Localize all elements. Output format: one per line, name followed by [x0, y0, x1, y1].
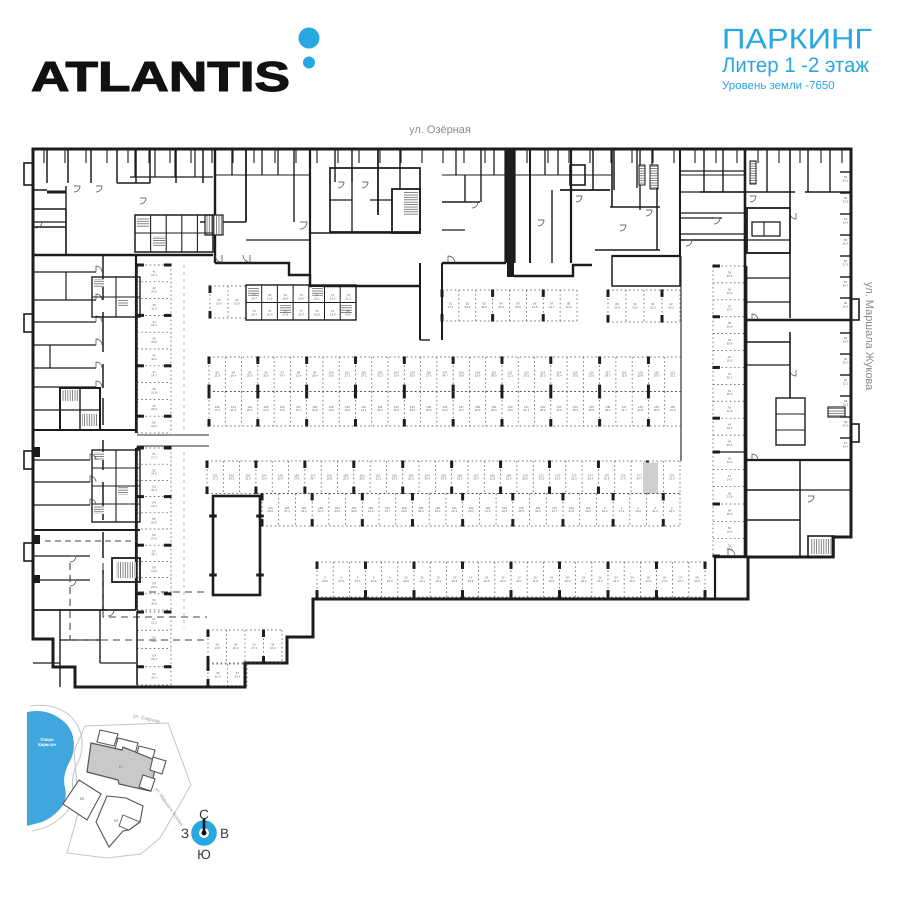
svg-text:10627.6: 10627.6	[426, 370, 432, 377]
svg-text:15816.8: 15816.8	[327, 473, 333, 480]
svg-text:17025.0: 17025.0	[522, 473, 528, 480]
svg-text:14311.3: 14311.3	[556, 405, 562, 412]
svg-text:С: С	[199, 807, 209, 822]
svg-text:16030.0: 16030.0	[359, 473, 365, 480]
svg-text:19418.4: 19418.4	[502, 506, 508, 513]
svg-text:17428.4: 17428.4	[587, 473, 593, 480]
svg-text:17510.5: 17510.5	[604, 473, 610, 480]
svg-text:З: З	[181, 826, 189, 841]
svg-text:13612.6: 13612.6	[442, 405, 448, 412]
svg-text:15331.3: 15331.3	[245, 473, 251, 480]
svg-text:11433.4: 11433.4	[556, 370, 562, 377]
svg-text:15734.7: 15734.7	[310, 473, 316, 480]
svg-text:17321.3: 17321.3	[571, 473, 577, 480]
svg-text:65: 65	[114, 818, 119, 823]
svg-text:Ю: Ю	[197, 847, 211, 862]
svg-text:11030.0: 11030.0	[491, 370, 497, 377]
svg-text:12025.0: 12025.0	[654, 370, 660, 377]
svg-text:ОзероКарасун: ОзероКарасун	[38, 737, 56, 747]
svg-text:В: В	[220, 826, 229, 841]
svg-text:14122.1: 14122.1	[524, 405, 530, 412]
svg-text:18020.0: 18020.0	[268, 506, 274, 513]
svg-text:14015.0: 14015.0	[507, 405, 513, 412]
svg-text:15627.6: 15627.6	[294, 473, 300, 480]
svg-text:18612.6: 18612.6	[368, 506, 374, 513]
svg-text:10734.7: 10734.7	[442, 370, 448, 377]
svg-text:14418.4: 14418.4	[572, 405, 578, 412]
svg-text:17214.2: 17214.2	[555, 473, 561, 480]
svg-text:18127.1: 18127.1	[284, 506, 290, 513]
svg-text:10224.2: 10224.2	[361, 370, 367, 377]
svg-text:19928.9: 19928.9	[585, 506, 591, 513]
svg-text:11918.9: 11918.9	[637, 370, 643, 377]
svg-text:10413.4: 10413.4	[393, 370, 399, 377]
svg-text:13719.7: 13719.7	[458, 405, 464, 412]
svg-text:11811.8: 11811.8	[621, 370, 627, 377]
svg-text:16326.3: 16326.3	[408, 473, 414, 480]
svg-text:18234.2: 18234.2	[301, 506, 307, 513]
svg-text:14821.8: 14821.8	[637, 405, 643, 412]
svg-text:13933.9: 13933.9	[491, 405, 497, 412]
svg-text:17617.6: 17617.6	[620, 473, 626, 480]
svg-text:11326.3: 11326.3	[540, 370, 546, 377]
svg-text:11729.7: 11729.7	[605, 370, 611, 377]
svg-text:15117.1: 15117.1	[212, 473, 218, 480]
svg-text:14229.2: 14229.2	[540, 405, 546, 412]
svg-text:Литер 1 -2 этаж: Литер 1 -2 этаж	[722, 54, 869, 77]
svg-text:13234.2: 13234.2	[377, 405, 383, 412]
svg-text:11515.5: 11515.5	[572, 370, 578, 377]
svg-text:17724.7: 17724.7	[636, 473, 642, 480]
svg-text:11622.6: 11622.6	[589, 370, 595, 377]
svg-text:10331.3: 10331.3	[377, 370, 383, 377]
svg-text:12428.4: 12428.4	[247, 405, 253, 412]
svg-text:15413.4: 15413.4	[261, 473, 267, 480]
svg-text:13530.5: 13530.5	[426, 405, 432, 412]
svg-text:16811.8: 16811.8	[490, 473, 496, 480]
svg-text:66: 66	[80, 796, 85, 801]
svg-text:12724.7: 12724.7	[296, 405, 302, 412]
svg-text:12132.1: 12132.1	[670, 370, 676, 377]
svg-text:16112.1: 16112.1	[375, 473, 381, 480]
svg-text:16729.7: 16729.7	[473, 473, 479, 480]
svg-text:18719.7: 18719.7	[385, 506, 391, 513]
svg-text:19714.7: 19714.7	[552, 506, 558, 513]
svg-text:10117.1: 10117.1	[345, 370, 351, 377]
svg-text:19821.8: 19821.8	[568, 506, 574, 513]
svg-text:ATLANTIS: ATLANTIS	[31, 53, 290, 100]
svg-text:18423.4: 18423.4	[334, 506, 340, 513]
svg-text:13826.8: 13826.8	[475, 405, 481, 412]
svg-text:18316.3: 18316.3	[318, 506, 324, 513]
svg-text:19525.5: 19525.5	[518, 506, 524, 513]
svg-text:16433.4: 16433.4	[424, 473, 430, 480]
svg-text:13127.1: 13127.1	[361, 405, 367, 412]
svg-text:10010.0: 10010.0	[328, 370, 334, 377]
svg-text:15224.2: 15224.2	[229, 473, 235, 480]
svg-text:Уровень земли -7650: Уровень земли -7650	[722, 80, 835, 92]
svg-text:12617.6: 12617.6	[279, 405, 285, 412]
svg-text:15010.0: 15010.0	[670, 405, 676, 412]
svg-text:19632.6: 19632.6	[535, 506, 541, 513]
svg-text:67: 67	[119, 764, 124, 769]
svg-text:19229.2: 19229.2	[468, 506, 474, 513]
svg-text:12913.9: 12913.9	[328, 405, 334, 412]
svg-text:13020.0: 13020.0	[345, 405, 351, 412]
svg-text:17132.1: 17132.1	[539, 473, 545, 480]
svg-text:10816.8: 10816.8	[458, 370, 464, 377]
svg-text:19122.1: 19122.1	[451, 506, 457, 513]
svg-text:13316.3: 13316.3	[393, 405, 399, 412]
svg-text:17913.9: 17913.9	[669, 473, 675, 480]
svg-text:14928.9: 14928.9	[654, 405, 660, 412]
svg-text:14714.7: 14714.7	[621, 405, 627, 412]
svg-text:ПАРКИНГ: ПАРКИНГ	[722, 24, 872, 56]
svg-text:15923.9: 15923.9	[343, 473, 349, 480]
svg-text:18530.5: 18530.5	[351, 506, 357, 513]
svg-text:14632.6: 14632.6	[605, 405, 611, 412]
svg-text:10923.9: 10923.9	[475, 370, 481, 377]
svg-text:12510.5: 12510.5	[263, 405, 269, 412]
svg-text:10520.5: 10520.5	[410, 370, 416, 377]
svg-text:12831.8: 12831.8	[312, 405, 318, 412]
svg-text:19311.3: 19311.3	[485, 506, 491, 513]
svg-text:11219.2: 11219.2	[524, 370, 530, 377]
svg-text:15520.5: 15520.5	[278, 473, 284, 480]
svg-text:18826.8: 18826.8	[401, 506, 407, 513]
svg-text:16515.5: 16515.5	[441, 473, 447, 480]
svg-text:13423.4: 13423.4	[410, 405, 416, 412]
svg-text:12321.3: 12321.3	[231, 405, 237, 412]
svg-text:14525.5: 14525.5	[589, 405, 595, 412]
svg-text:19015.0: 19015.0	[435, 506, 441, 513]
svg-text:ул. Озёрная: ул. Озёрная	[409, 124, 471, 136]
svg-text:16918.9: 16918.9	[506, 473, 512, 480]
svg-text:ул. Маршала Жукова: ул. Маршала Жукова	[863, 282, 875, 391]
svg-text:18933.9: 18933.9	[418, 506, 424, 513]
svg-text:12214.2: 12214.2	[214, 405, 220, 412]
svg-text:16219.2: 16219.2	[392, 473, 398, 480]
svg-text:16622.6: 16622.6	[457, 473, 463, 480]
